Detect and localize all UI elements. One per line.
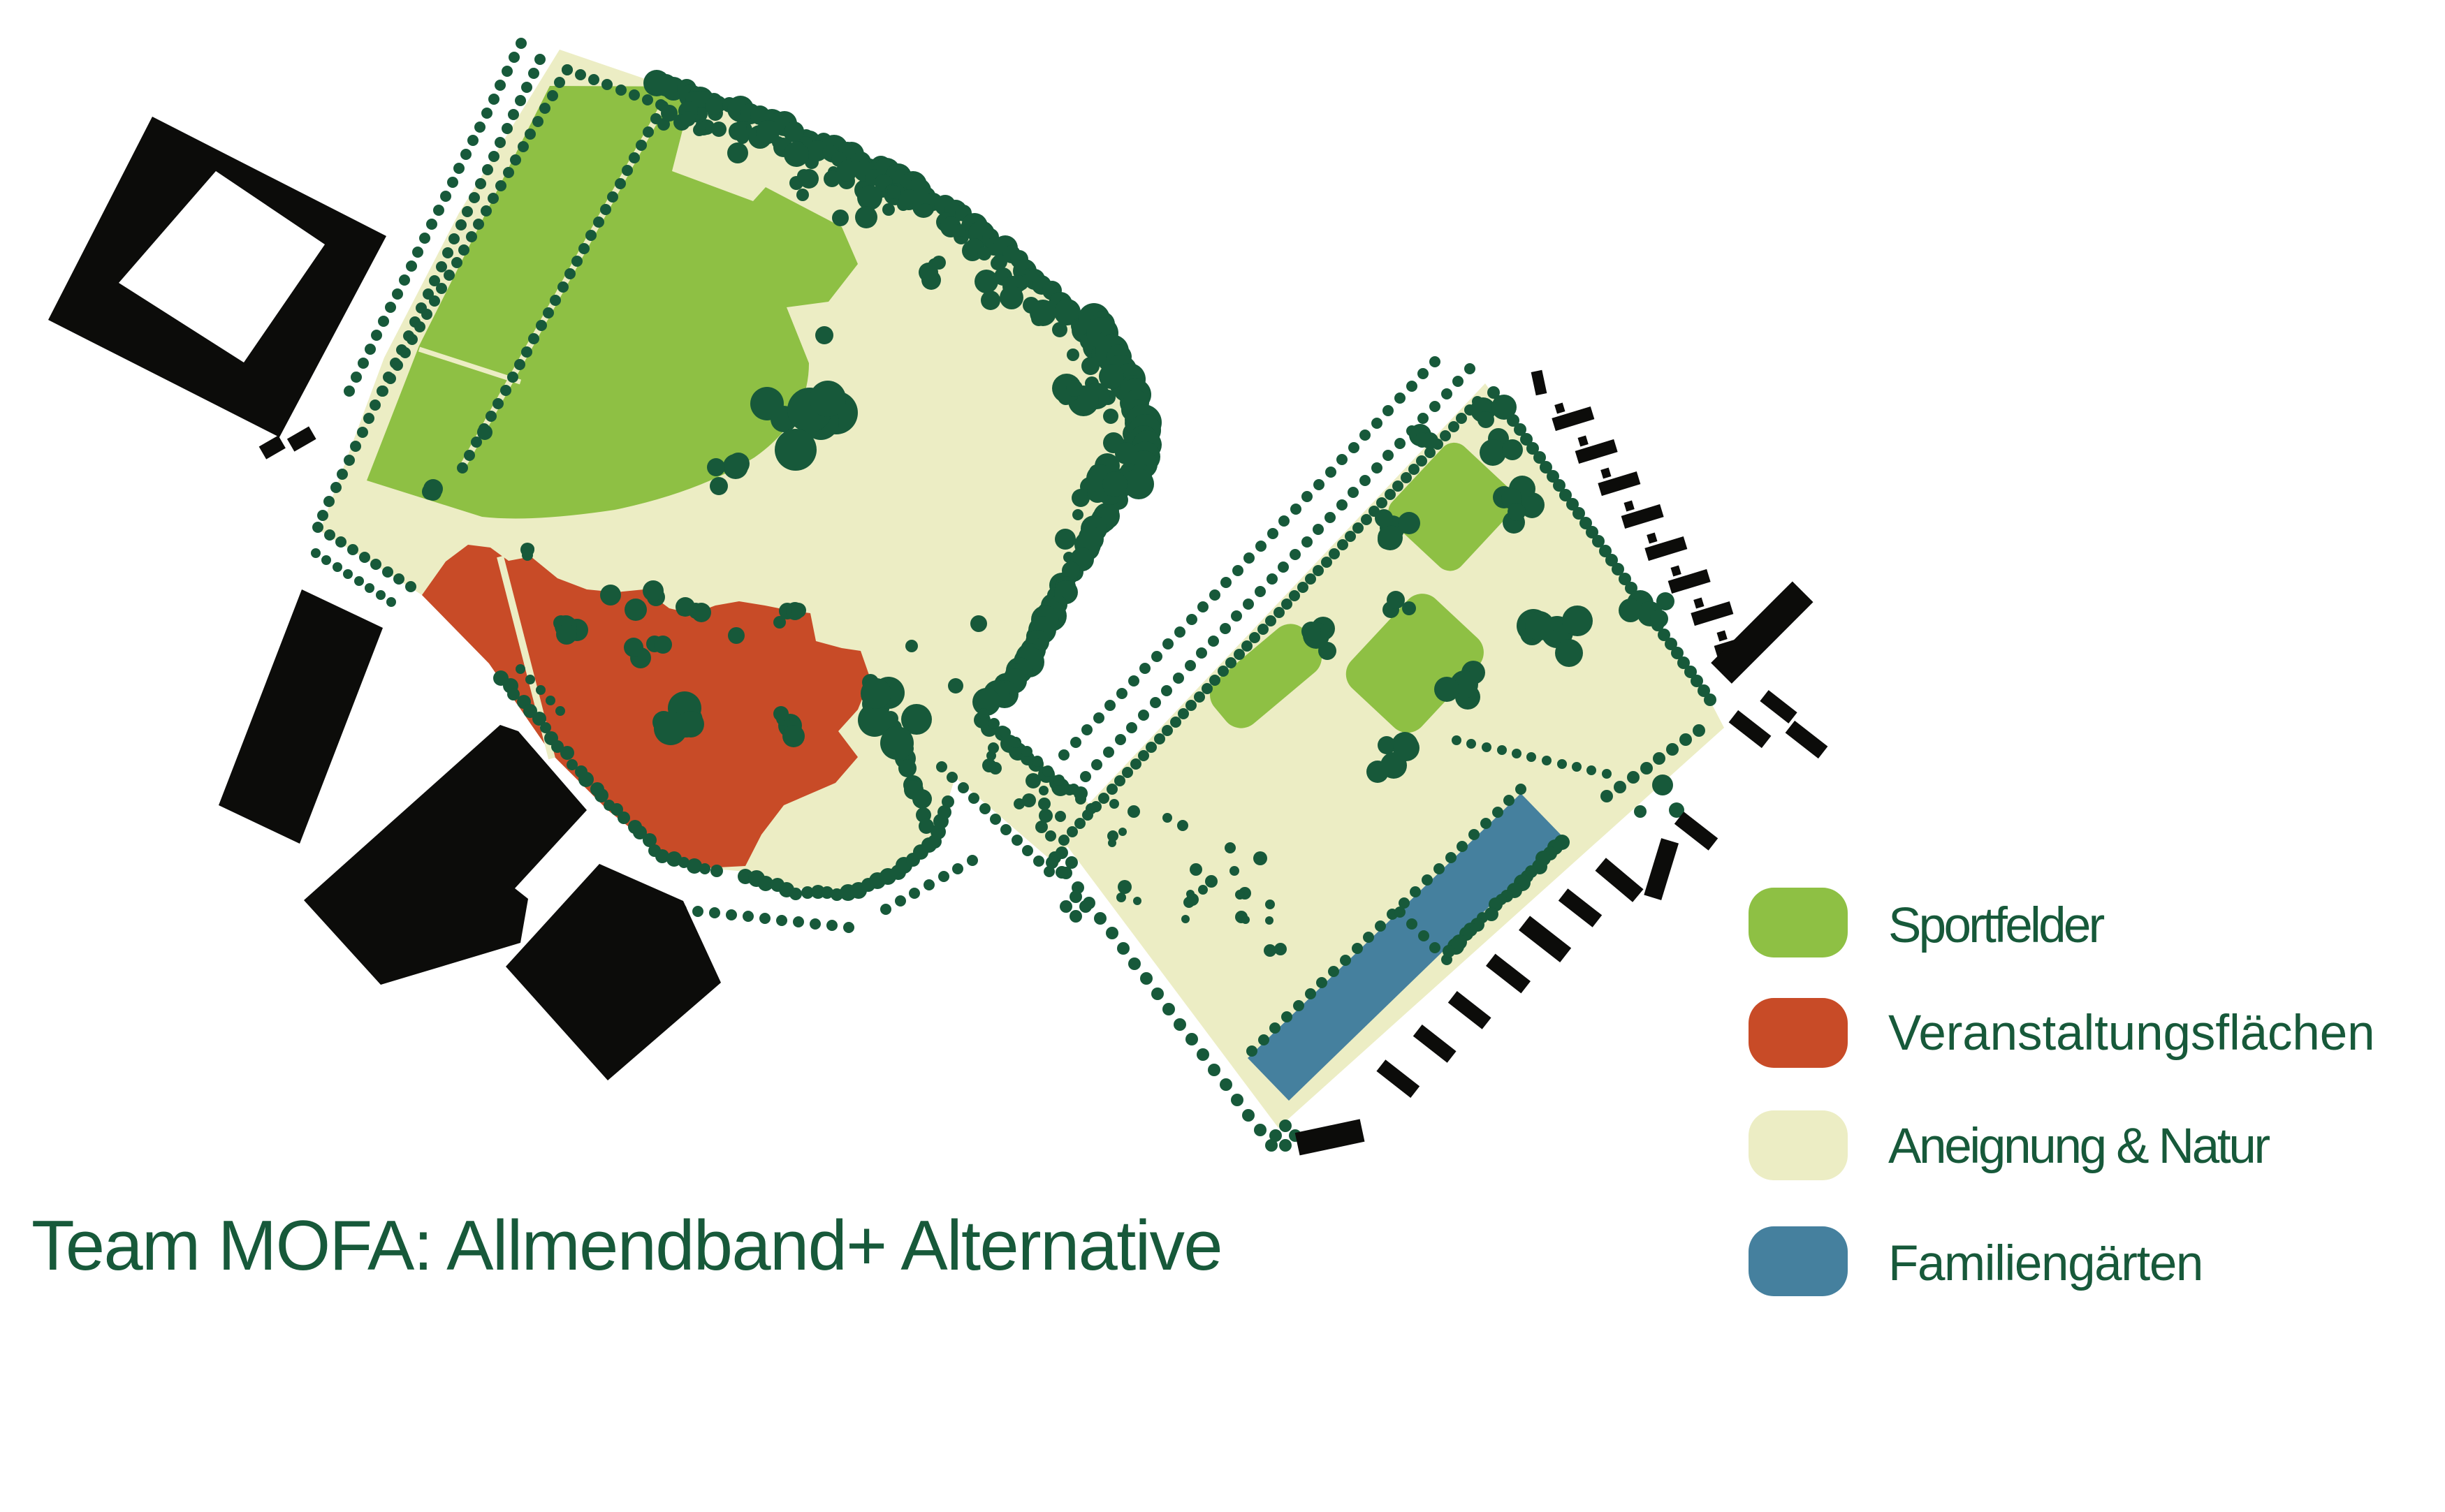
svg-text:Veranstaltungsflächen: Veranstaltungsflächen	[1888, 1006, 2375, 1061]
svg-text:Team MOFA: Allmendband+ Altern: Team MOFA: Allmendband+ Alternative	[31, 1207, 1222, 1285]
svg-text:Familiengärten: Familiengärten	[1888, 1236, 2203, 1291]
svg-text:Aneignung & Natur: Aneignung & Natur	[1888, 1119, 2270, 1174]
svg-text:Sportfelder: Sportfelder	[1888, 898, 2105, 953]
